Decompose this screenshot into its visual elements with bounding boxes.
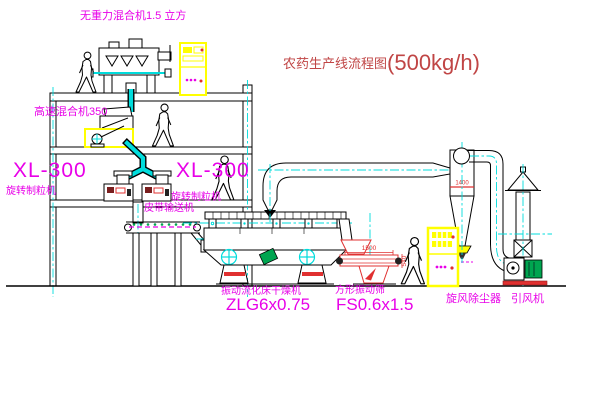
label-granulator-left-name: 旋转制粒机 [6,187,56,197]
person-on-roof [76,52,96,92]
label-granulator-left-model: XL-300 [13,160,87,181]
control-cabinet-2 [428,228,458,286]
label-dryer-model: ZLG6x0.75 [226,296,310,313]
drawing-title: 农药生产线流程图 (500kg/h) [283,50,480,76]
label-cyclone: 旋风除尘器 [446,294,501,305]
induced-draft-fan-drawing [503,258,547,285]
label-sieve-model: FS0.6x1.5 [336,296,414,313]
title-capacity: (500kg/h) [387,50,480,76]
control-cabinet-1 [180,43,206,95]
person-floor2 [152,104,173,146]
label-granulator-right-name: 旋转制粒机 [171,193,221,203]
label-fan: 引风机 [511,294,544,305]
label-granulator-right-model: XL-300 [176,160,250,181]
title-text: 农药生产线流程图 [283,53,387,72]
belt-conveyor-drawing [125,222,215,286]
cyclone-vortex-finder [454,148,470,164]
label-belt-conveyor: 皮带输送机 [144,204,194,214]
fan-base [503,281,547,285]
label-high-speed-mixer: 高速混合机350 [34,107,107,118]
dryer-drawing [183,212,352,284]
sieve-length-dimension: 1500 [362,245,377,252]
granulator-left-drawing [104,171,133,201]
granulator-right-drawing [142,171,171,201]
pesticide-line-flow-diagram: 1400 1500 [0,0,600,403]
dryer-spring-mounts [209,219,344,228]
label-gravity-mixer: 无重力混合机1.5 立方 [80,11,186,22]
